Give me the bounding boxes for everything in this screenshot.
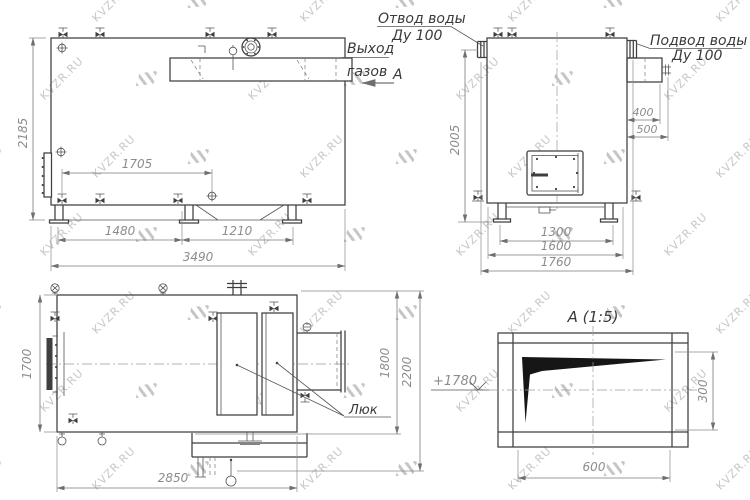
valve-icon (508, 28, 517, 38)
plan-view: Люк 1700 1800 2200 2850 (20, 280, 424, 492)
drain-valve-icon (96, 194, 105, 204)
chimney-flange-icon (242, 38, 260, 56)
dim-side-base: 1300 (541, 225, 572, 239)
dim-front-overall: 3490 (183, 250, 214, 264)
plan-lower-pipe (195, 457, 236, 486)
side-support-frame (494, 203, 618, 222)
valve-icon (268, 28, 277, 38)
gas-outlet-text-1: Выход (347, 41, 394, 57)
dim-side-overall: 1760 (541, 255, 572, 269)
fitting-icon (51, 284, 59, 295)
dim-plan-depth-outer: 2200 (400, 356, 414, 387)
plan-bottom-fittings (58, 432, 106, 445)
dim-detail-height: 300 (696, 379, 710, 402)
plan-shell (57, 295, 297, 432)
valve-icon (59, 28, 68, 38)
duct-bracket-icon (198, 46, 205, 53)
water-supply-text-1: Подвод воды (650, 33, 747, 49)
dim-plan-width: 1700 (20, 348, 34, 379)
valve-icon (606, 28, 615, 38)
dim-inlet-total: 500 (637, 123, 658, 136)
valve-icon (51, 312, 60, 322)
elevation-text: +1780 (433, 374, 477, 389)
elevation-mark: +1780 (431, 374, 489, 390)
drain-valve-icon (303, 194, 312, 204)
side-inlet-box (627, 58, 662, 82)
front-door (42, 153, 52, 197)
dim-inlet-offset: 400 (633, 106, 654, 119)
detail-centerlines (489, 326, 697, 455)
fitting-icon (159, 284, 167, 295)
dim-plan-depth-inner: 1800 (378, 347, 392, 378)
water-outlet-label: Отвод воды Ду 100 (377, 11, 483, 46)
dim-side-width: 1600 (541, 239, 572, 253)
water-outlet-text-2: Ду 100 (391, 28, 442, 44)
dim-front-base-right: 1210 (222, 224, 253, 238)
side-view: 400 500 1300 1600 1760 2005 Отвод воды Д… (377, 11, 747, 275)
side-door (527, 151, 583, 195)
drain-valve-icon (58, 194, 67, 204)
water-supply-flange (627, 41, 637, 59)
dim-detail-width: 600 (583, 460, 606, 474)
position-mark-icon (56, 147, 67, 158)
drain-valve-icon (174, 194, 183, 204)
front-gas-duct (170, 58, 352, 81)
position-mark-icon (57, 43, 68, 54)
dim-plan-length: 2850 (158, 471, 189, 485)
valve-icon (96, 28, 105, 38)
valve-icon (494, 28, 503, 38)
inlet-stub-flange (662, 65, 671, 76)
valve-icon (206, 28, 215, 38)
dim-front-base-left: 1480 (105, 224, 136, 238)
plan-subframe (192, 433, 307, 457)
dim-front-height: 2185 (16, 118, 30, 149)
valve-icon (69, 414, 78, 424)
valve-icon (209, 312, 218, 322)
water-outlet-text-1: Отвод воды (378, 11, 466, 27)
hatch-text: Люк (348, 403, 378, 418)
plan-gas-duct (297, 323, 345, 402)
front-view: 2185 1705 1480 1210 3490 Выход газов А (16, 28, 403, 271)
detail-view-a: А (1:5) 300 600 +1780 (431, 308, 718, 482)
plan-top-stub-flange (227, 280, 247, 295)
water-supply-text-2: Ду 100 (671, 48, 722, 64)
drawing-svg: 2185 1705 1480 1210 3490 Выход газов А (0, 0, 750, 500)
boiler-technical-drawing: KVZR.RUKVZR.RUKVZR.RUKVZR.RUKVZR.RUKVZR.… (0, 0, 750, 500)
front-support-frame (50, 205, 302, 223)
water-supply-label: Подвод воды Ду 100 (636, 33, 747, 64)
valve-icon (270, 302, 279, 312)
dim-side-height-axis: 2005 (448, 125, 462, 156)
dim-front-top: 1705 (122, 157, 153, 171)
gas-outlet-text-2: газов (347, 64, 387, 80)
section-mark-text: А (392, 67, 403, 83)
detail-title: А (1:5) (567, 308, 619, 326)
